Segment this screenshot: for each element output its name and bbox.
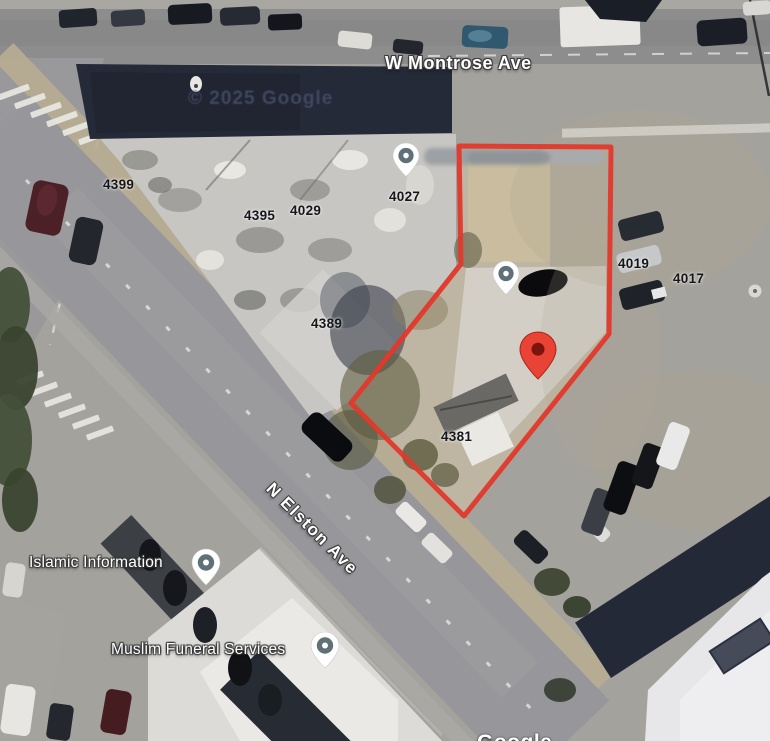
poi-label-islamic-information[interactable]: Islamic Information <box>29 554 163 572</box>
car <box>58 8 97 29</box>
car <box>268 13 303 30</box>
car <box>696 17 748 46</box>
tree <box>544 678 576 702</box>
car <box>193 607 217 643</box>
tree <box>2 468 38 532</box>
address-label-4019: 4019 <box>618 256 649 271</box>
poi-label-muslim-funeral-services[interactable]: Muslim Funeral Services <box>111 641 285 659</box>
blurred-label <box>424 148 604 165</box>
address-label-4029: 4029 <box>290 203 321 218</box>
car <box>220 6 261 26</box>
brush <box>392 290 448 330</box>
car <box>743 0 770 16</box>
address-label-4389: 4389 <box>311 316 342 331</box>
satellite-map-canvas[interactable]: W Montrose Ave N Elston Ave 4399 4395 40… <box>0 0 770 741</box>
tree <box>534 568 570 596</box>
address-label-4395: 4395 <box>244 208 275 223</box>
tree <box>402 439 438 471</box>
car <box>46 703 75 741</box>
car <box>163 570 187 606</box>
street-label-montrose: W Montrose Ave <box>385 53 532 74</box>
tree <box>563 596 591 618</box>
car <box>258 684 282 716</box>
satellite-imagery <box>0 0 770 741</box>
address-label-4027: 4027 <box>389 189 420 204</box>
address-label-4399: 4399 <box>103 177 134 192</box>
tree <box>431 463 459 487</box>
copyright-watermark: © 2025 Google <box>188 88 333 110</box>
car <box>168 3 213 25</box>
car <box>110 9 145 27</box>
tree <box>374 476 406 504</box>
google-logo-watermark: Google <box>477 731 552 741</box>
address-label-4017: 4017 <box>673 271 704 286</box>
address-label-4381: 4381 <box>441 429 472 444</box>
